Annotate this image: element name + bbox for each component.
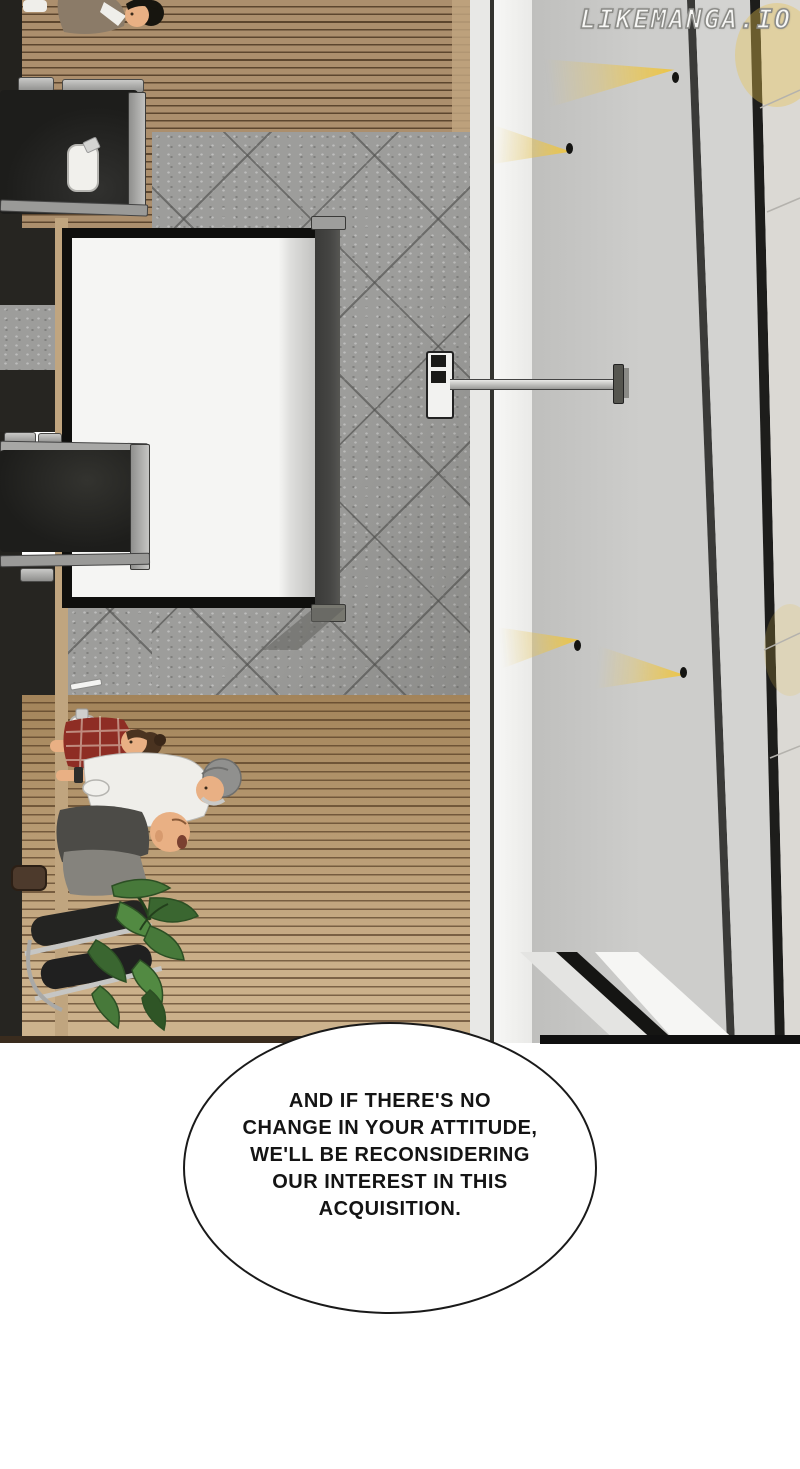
wood-edge-strip-top-right — [452, 0, 470, 132]
projector-wall-bracket — [613, 364, 624, 404]
businesspeople-group — [0, 690, 270, 1042]
speech-bubble: AND IF THERE'S NO CHANGE IN YOUR ATTITUD… — [183, 1022, 597, 1314]
projector-bracket-cap — [624, 368, 629, 398]
chair-armrest — [20, 568, 54, 582]
spotlight-3 — [574, 640, 581, 651]
speech-line: ACQUISITION. — [319, 1196, 462, 1223]
scene-bottom-edge-right — [540, 1035, 800, 1044]
right-wall-panels — [660, 0, 800, 1043]
speech-line: WE'LL BE RECONSIDERING — [250, 1142, 530, 1169]
spotlight-2 — [566, 143, 573, 154]
projector-lens-2 — [431, 371, 446, 383]
screen-pole — [315, 218, 340, 622]
businessman-top — [20, 0, 190, 64]
office-chair-2 — [0, 430, 158, 586]
spotlight-4 — [680, 667, 687, 678]
projector-lens-1 — [431, 355, 446, 367]
spotlight-1 — [672, 72, 679, 83]
stone-tile-patch-left — [0, 305, 55, 370]
hallway-corner — [470, 930, 800, 1043]
chair-frame-rail — [128, 92, 146, 214]
speech-line: AND IF THERE'S NO — [289, 1088, 491, 1115]
screen-pole-top-cap — [311, 216, 346, 230]
manga-panel: LIKEMANGA.IO AND IF THERE'S NO CHANGE IN… — [0, 0, 800, 1469]
projector-arm — [450, 379, 616, 390]
chair-seat — [0, 450, 134, 552]
site-watermark: LIKEMANGA.IO — [580, 5, 792, 35]
chair-frame-rail — [0, 553, 150, 568]
speech-line: CHANGE IN YOUR ATTITUDE, — [243, 1115, 538, 1142]
chair-frame-rail — [130, 444, 150, 570]
water-bottle-top — [67, 144, 99, 192]
speech-line: OUR INTEREST IN THIS — [272, 1169, 508, 1196]
